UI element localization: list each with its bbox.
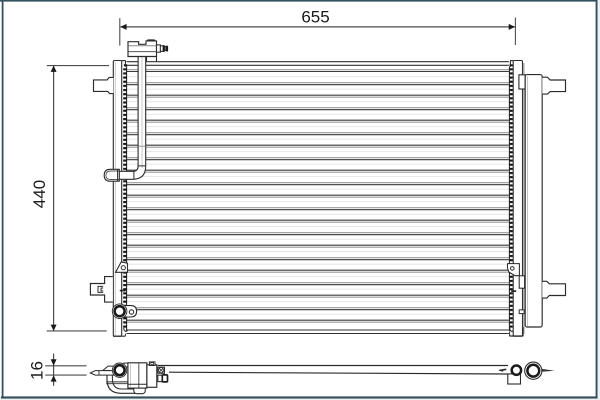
svg-text:655: 655 <box>301 7 329 26</box>
svg-text:440: 440 <box>30 180 49 208</box>
svg-text:16: 16 <box>27 361 46 380</box>
